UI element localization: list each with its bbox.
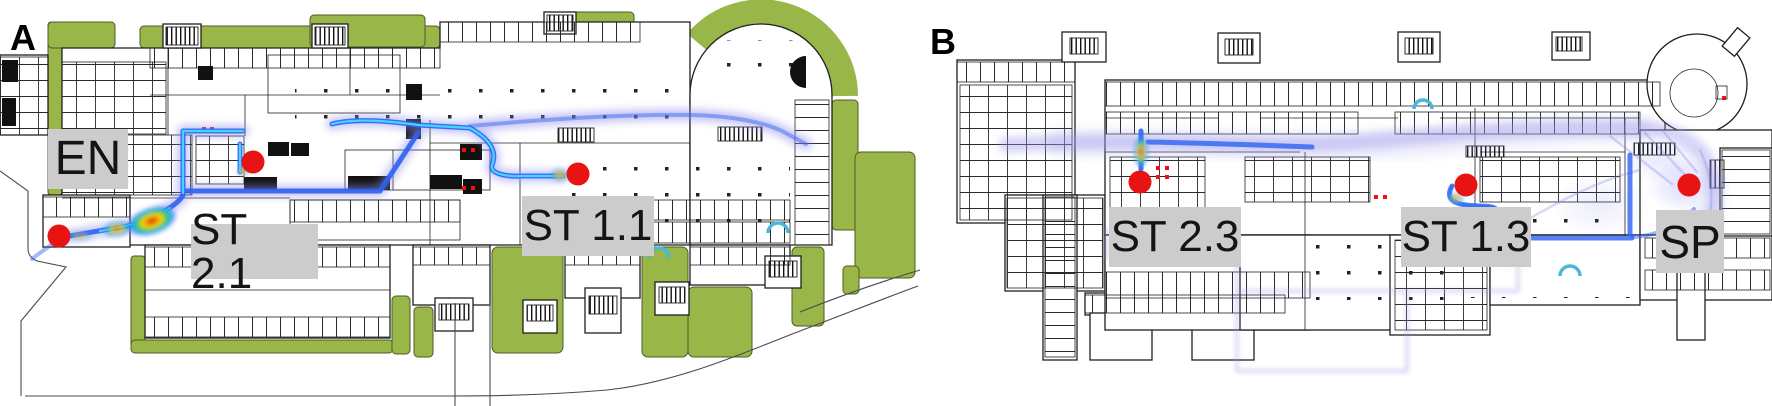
station-label-st21: ST 2.1 <box>191 224 318 279</box>
station-label-st13: ST 1.3 <box>1401 207 1531 267</box>
station-label-en: EN <box>48 129 128 189</box>
station-label-st23: ST 2.3 <box>1109 207 1241 267</box>
panel-a-letter: A <box>10 20 36 56</box>
floorplan-figure: A B EN ST 2.1 ST 1.1 ST 2.3 ST 1.3 SP <box>0 0 1772 406</box>
station-label-st11: ST 1.1 <box>522 196 654 256</box>
panel-b-letter: B <box>930 24 956 60</box>
floorplan-canvas <box>0 0 1772 406</box>
station-label-sp: SP <box>1656 210 1724 273</box>
panel-a-floorplan <box>0 12 920 406</box>
